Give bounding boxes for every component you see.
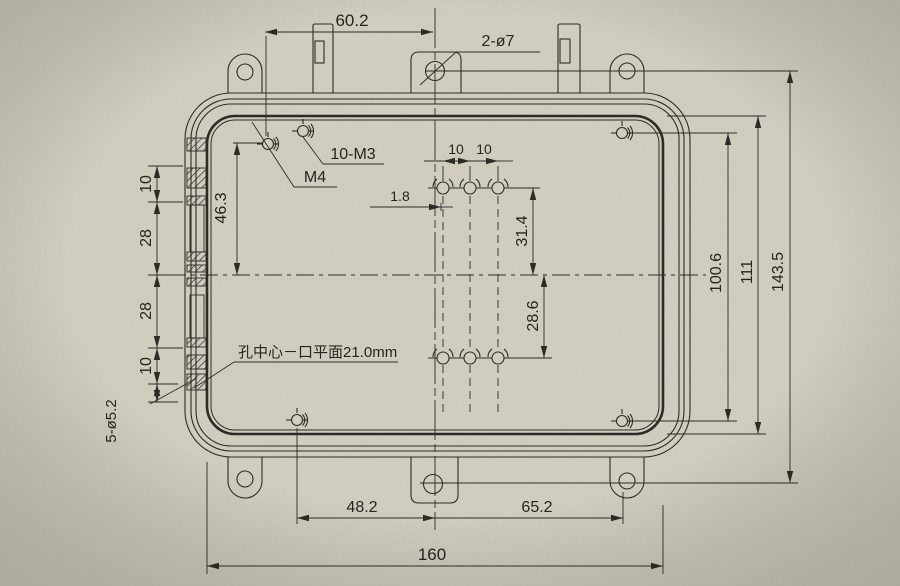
enclosure-dimension-drawing: 60.2 2-ø7 10-M3 M4 46.3 10 10 1.8 31.4 2…: [0, 0, 900, 586]
vignette-overlay: [0, 0, 900, 586]
drawing-page: 60.2 2-ø7 10-M3 M4 46.3 10 10 1.8 31.4 2…: [0, 0, 900, 586]
